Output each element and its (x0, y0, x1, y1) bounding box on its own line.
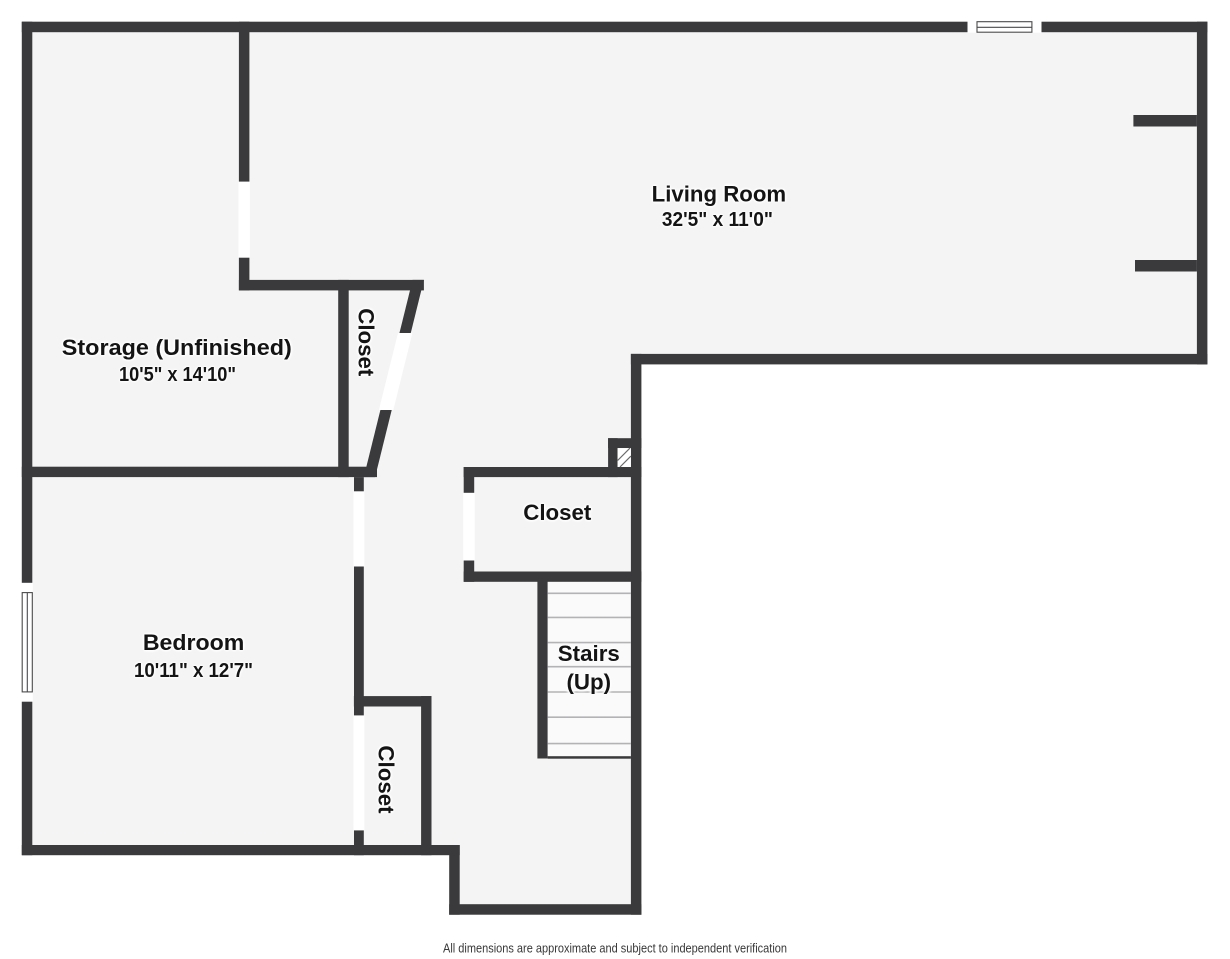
svg-text:Bedroom: Bedroom (143, 630, 245, 655)
svg-text:All dimensions are approximate: All dimensions are approximate and subje… (443, 940, 787, 955)
svg-text:Stairs: Stairs (558, 641, 620, 666)
svg-text:10'11" x 12'7": 10'11" x 12'7" (134, 660, 253, 682)
svg-text:32'5" x 11'0": 32'5" x 11'0" (662, 209, 773, 231)
svg-text:Storage (Unfinished): Storage (Unfinished) (62, 335, 292, 360)
svg-text:10'5" x 14'10": 10'5" x 14'10" (119, 364, 236, 386)
svg-text:Living Room: Living Room (652, 181, 787, 206)
svg-text:Closet: Closet (523, 500, 592, 525)
svg-text:(Up): (Up) (567, 670, 612, 695)
svg-text:Closet: Closet (373, 745, 398, 814)
svg-text:Closet: Closet (354, 308, 379, 377)
